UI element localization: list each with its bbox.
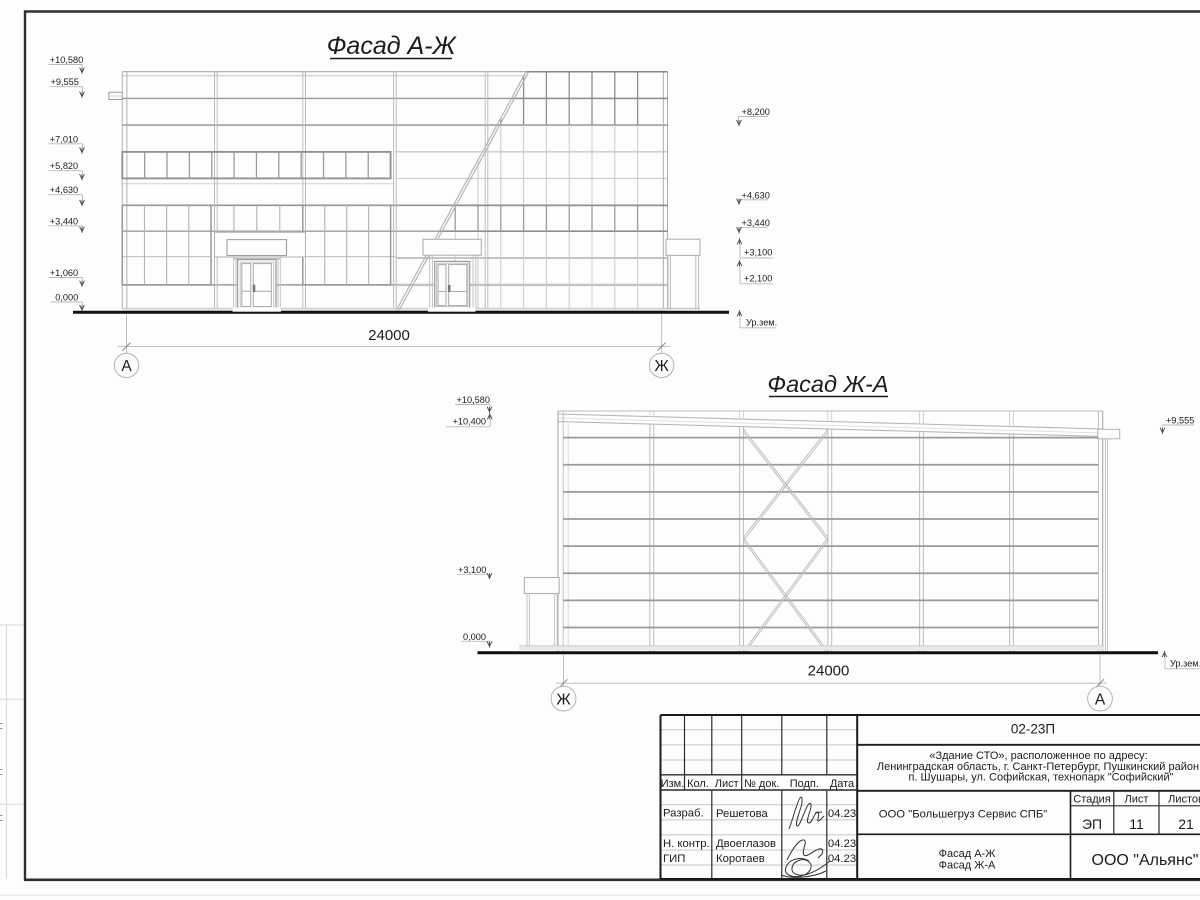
svg-text:Коротаев: Коротаев <box>716 853 765 865</box>
svg-text:+1,060: +1,060 <box>50 268 78 278</box>
svg-text:04.23: 04.23 <box>828 853 856 865</box>
svg-text:+5,820: +5,820 <box>50 161 78 171</box>
svg-text:ООО "Большегруз Сервис СПБ": ООО "Большегруз Сервис СПБ" <box>879 809 1048 821</box>
svg-text:Ж: Ж <box>654 358 669 375</box>
svg-text:Лист: Лист <box>715 778 739 790</box>
svg-text:+4,630: +4,630 <box>742 190 770 200</box>
svg-text:02-23П: 02-23П <box>1011 722 1055 737</box>
svg-text:04.23: 04.23 <box>828 808 856 820</box>
svg-text:Кол.: Кол. <box>687 778 709 790</box>
svg-text:+4,630: +4,630 <box>50 185 78 195</box>
svg-text:Листов: Листов <box>1168 794 1200 806</box>
svg-text:Подп.: Подп. <box>790 778 819 790</box>
svg-text:24000: 24000 <box>808 663 850 680</box>
svg-text:Фасад А-Ж: Фасад А-Ж <box>327 32 458 60</box>
svg-text:Разраб.: Разраб. <box>663 808 704 820</box>
svg-text:0,000: 0,000 <box>463 632 486 642</box>
svg-text:+2,100: +2,100 <box>744 273 772 283</box>
svg-text:Ур.зем.: Ур.зем. <box>746 317 777 327</box>
svg-text:п. Шушары, ул. Софийская, техн: п. Шушары, ул. Софийская, технопарк "Соф… <box>908 771 1173 783</box>
svg-text:+10,580: +10,580 <box>457 395 490 405</box>
svg-text:Лист: Лист <box>1125 794 1149 806</box>
svg-text:ООО "Альянс": ООО "Альянс" <box>1092 852 1199 869</box>
svg-text:№ док.: № док. <box>744 778 779 790</box>
svg-text:+10,580: +10,580 <box>50 55 83 65</box>
svg-text:24000: 24000 <box>368 327 410 344</box>
svg-text:Решетова: Решетова <box>716 808 768 820</box>
svg-text:+3,100: +3,100 <box>458 565 486 575</box>
svg-text:+9,555: +9,555 <box>1166 416 1194 426</box>
svg-text:Изм.: Изм. <box>661 778 685 790</box>
svg-text:Фасад Ж-А: Фасад Ж-А <box>939 860 996 872</box>
svg-text:Ж: Ж <box>556 691 571 708</box>
svg-text:+10,400: +10,400 <box>453 416 486 426</box>
svg-text:Двоеглазов: Двоеглазов <box>716 838 776 850</box>
svg-text:+3,440: +3,440 <box>50 216 78 226</box>
svg-text:Ур.зем.: Ур.зем. <box>1170 658 1200 668</box>
svg-text:Фасад Ж-А: Фасад Ж-А <box>767 371 888 397</box>
svg-text:21: 21 <box>1178 816 1194 832</box>
svg-text:04.23: 04.23 <box>828 838 856 850</box>
svg-text:А: А <box>121 358 132 375</box>
svg-text:Н. контр.: Н. контр. <box>663 838 710 850</box>
svg-text:+8,200: +8,200 <box>742 107 770 117</box>
svg-text:+3,440: +3,440 <box>742 218 770 228</box>
svg-text:Дата: Дата <box>830 778 855 790</box>
svg-text:Стадия: Стадия <box>1073 794 1111 806</box>
svg-text:0,000: 0,000 <box>55 293 78 303</box>
svg-text:+7,010: +7,010 <box>50 134 78 144</box>
svg-text:Фасад А-Ж: Фасад А-Ж <box>939 848 996 860</box>
svg-text:11: 11 <box>1129 816 1144 832</box>
svg-text:+9,555: +9,555 <box>51 77 79 87</box>
svg-text:ГИП: ГИП <box>663 853 685 865</box>
svg-text:ЭП: ЭП <box>1082 816 1102 832</box>
svg-text:А: А <box>1095 691 1106 708</box>
svg-text:+3,100: +3,100 <box>744 248 772 258</box>
